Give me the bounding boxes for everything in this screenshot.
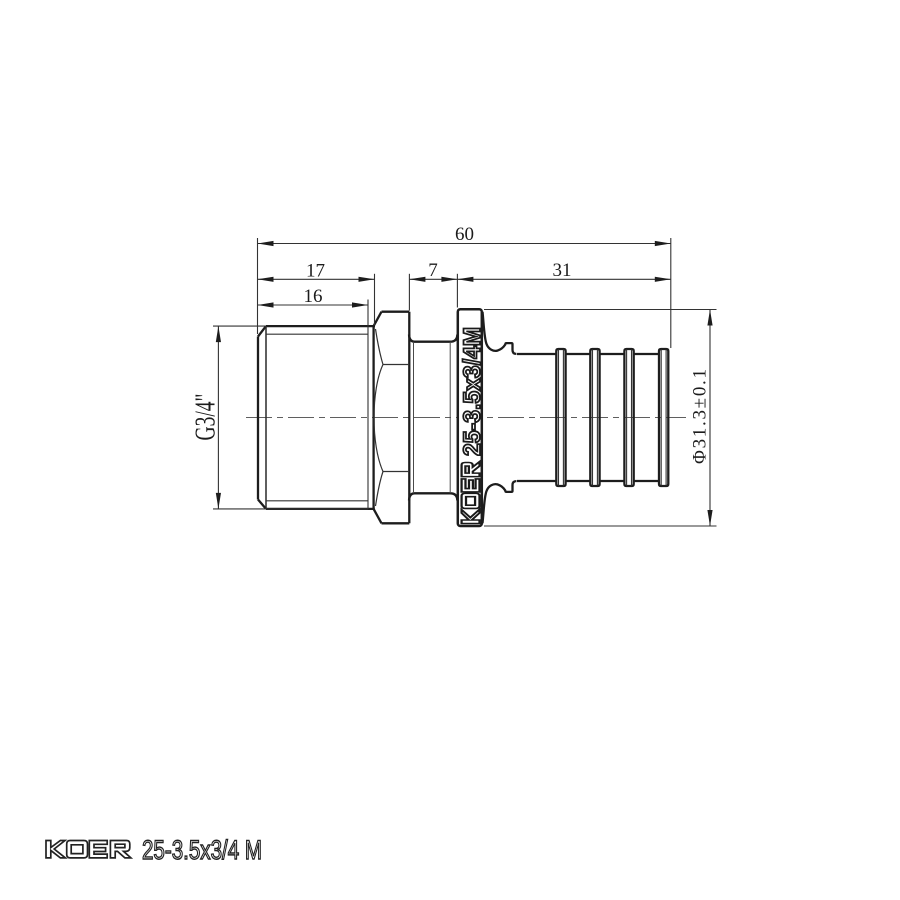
svg-text:16: 16 [304,286,323,307]
svg-text:7: 7 [428,260,438,281]
svg-text:G3/4": G3/4" [190,394,222,441]
svg-text:31: 31 [553,260,572,281]
svg-text:17: 17 [306,260,325,281]
svg-text:60: 60 [455,224,474,245]
svg-text:25-3.5x3/4 M: 25-3.5x3/4 M [142,835,262,865]
svg-text:25-3.5x3/4M: 25-3.5x3/4M [459,327,486,456]
